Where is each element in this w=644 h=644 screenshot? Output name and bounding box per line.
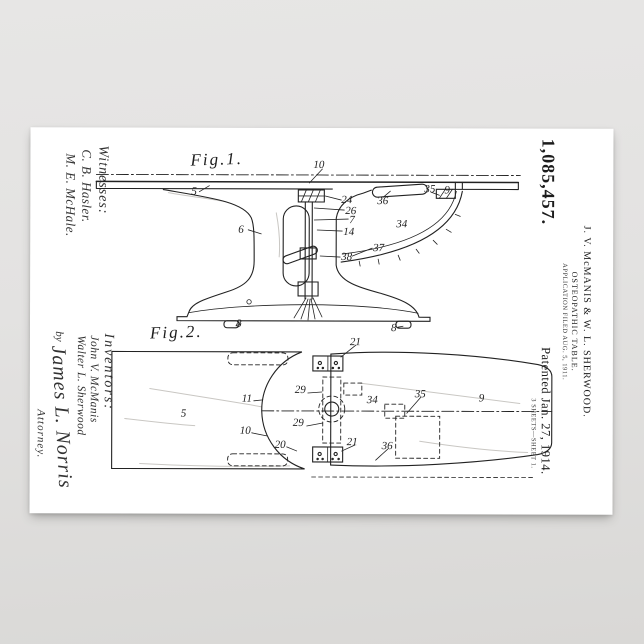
ref-numeral-9: 9: [479, 393, 485, 403]
ref-numeral-5: 5: [191, 187, 197, 197]
ref-numeral-5: 5: [181, 409, 187, 419]
fig2-left-panel: [112, 351, 305, 469]
product-photo-background: Witnesses: C. B. Hasler. M. E. McHale. I…: [0, 0, 644, 644]
fig2-title: Fig.2.: [150, 322, 203, 344]
ref-numeral-24: 24: [341, 195, 352, 205]
ref-numeral-21: 21: [347, 437, 358, 447]
ref-numeral-20: 20: [275, 440, 286, 450]
ref-numeral-8: 8: [236, 319, 242, 329]
ref-numeral-34: 34: [396, 219, 407, 229]
ref-numeral-38: 38: [341, 252, 352, 262]
ref-numeral-8: 8: [391, 323, 397, 333]
ref-numeral-9: 9: [444, 185, 450, 195]
ref-numeral-6: 6: [238, 225, 244, 235]
ref-numeral-36: 36: [382, 441, 393, 451]
patent-drawing-area: Fig.1. Fig.2. 10562426714363593437388821…: [90, 141, 591, 504]
ref-numeral-11: 11: [242, 394, 252, 404]
ref-numeral-10: 10: [313, 160, 324, 170]
fig2-right-leaf: [331, 352, 552, 466]
ref-numeral-21: 21: [350, 337, 361, 347]
ref-numeral-37: 37: [373, 243, 384, 253]
attorney-signature-row: by James L. Norris: [47, 323, 74, 499]
attorney-label: Attorney.: [35, 323, 47, 499]
ref-numeral-10: 10: [240, 426, 251, 436]
ref-numeral-35: 35: [415, 389, 426, 399]
ref-numeral-29: 29: [293, 418, 304, 428]
attorney-signature: James L. Norris: [46, 345, 77, 489]
ref-numeral-36: 36: [377, 196, 388, 206]
by-label: by: [53, 331, 65, 341]
ref-numeral-34: 34: [367, 395, 378, 405]
fig1-title: Fig.1.: [190, 149, 243, 171]
ref-numeral-7: 7: [349, 215, 355, 225]
ref-numeral-14: 14: [343, 227, 354, 237]
ref-numeral-35: 35: [424, 184, 435, 194]
patent-poster-sheet: Witnesses: C. B. Hasler. M. E. McHale. I…: [29, 127, 613, 515]
witness-signature-2: M. E. McHale.: [62, 135, 78, 255]
fig1-centerline: [96, 174, 520, 175]
ref-numeral-29: 29: [295, 385, 306, 395]
